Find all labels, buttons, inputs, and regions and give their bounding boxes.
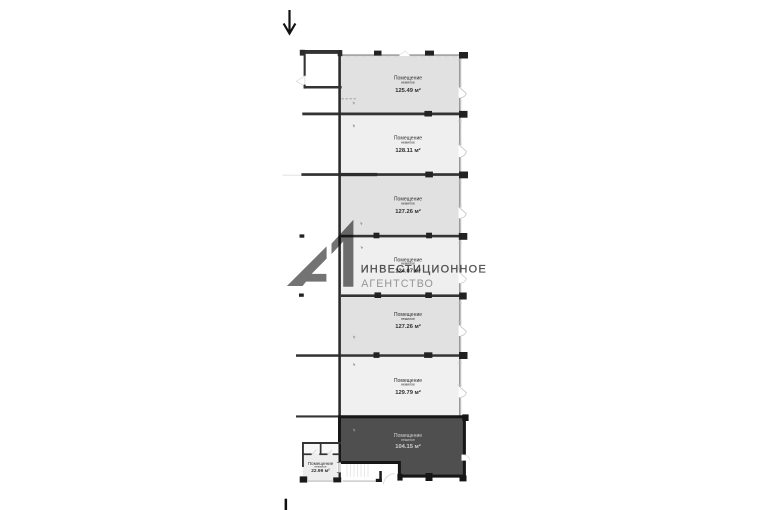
svg-text:нежилое: нежилое [401,383,415,387]
svg-text:127.26 м²: 127.26 м² [395,208,421,215]
svg-text:нежилое: нежилое [314,464,326,468]
svg-text:ИНВЕСТИЦИОННОЕ: ИНВЕСТИЦИОННОЕ [361,263,487,275]
svg-text:125.49 м²: 125.49 м² [395,87,421,94]
svg-text:нежилое: нежилое [401,201,415,205]
svg-text:нежилое: нежилое [401,317,415,321]
svg-text:АГЕНТСТВО: АГЕНТСТВО [361,278,434,290]
svg-text:104.15 м²: 104.15 м² [395,443,421,450]
svg-text:22.99 м²: 22.99 м² [311,468,330,474]
svg-text:нежилое: нежилое [401,80,415,84]
svg-text:нежилое: нежилое [401,438,415,442]
svg-text:нежилое: нежилое [401,140,415,144]
svg-text:127.26 м²: 127.26 м² [395,323,421,330]
svg-text:128.11 м²: 128.11 м² [395,147,420,154]
svg-text:129.79 м²: 129.79 м² [395,389,421,396]
